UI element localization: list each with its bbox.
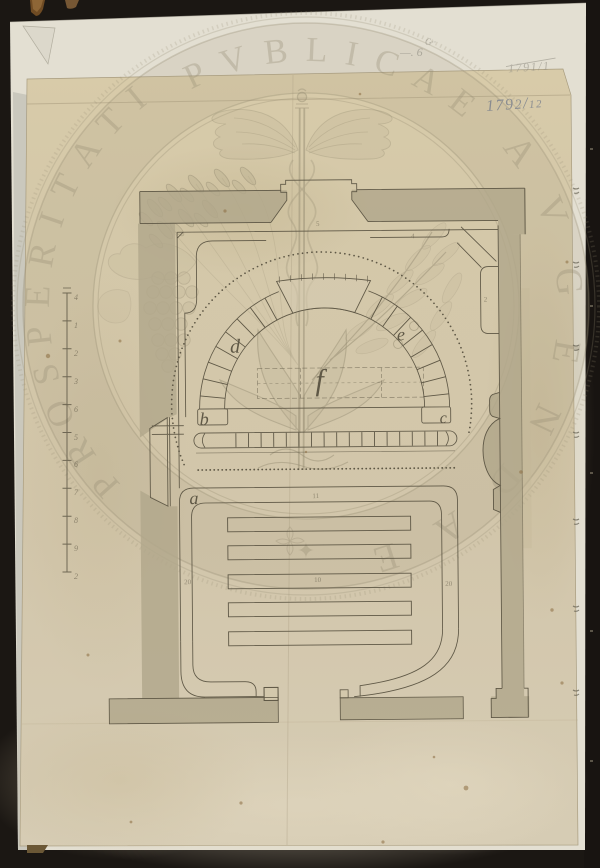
svg-text:20: 20 [184,578,192,586]
svg-text:2: 2 [484,296,488,304]
svg-text:a: a [189,488,198,508]
svg-text:—. 6: —. 6 [399,45,423,59]
svg-text:4: 4 [411,232,415,240]
svg-text:2: 2 [74,572,78,581]
svg-text:G··: G·· [425,37,436,47]
svg-text:d: d [230,336,241,358]
svg-text:10: 10 [314,576,322,584]
svg-text:6: 6 [74,405,78,414]
svg-text:2: 2 [74,349,78,358]
svg-text:4: 4 [74,293,78,302]
svg-text:6: 6 [74,460,78,469]
svg-text:9: 9 [74,544,78,553]
svg-text:1: 1 [74,321,78,330]
svg-text:3: 3 [73,377,78,386]
svg-text:5: 5 [74,433,78,442]
svg-text:c: c [440,410,447,427]
svg-text:e: e [397,324,405,344]
svg-text:11: 11 [312,492,319,500]
svg-text:20: 20 [445,580,453,588]
svg-text:8: 8 [74,516,78,525]
svg-text:1791/1: 1791/1 [508,58,551,75]
svg-text:b: b [200,409,209,429]
svg-text:5: 5 [316,220,320,228]
